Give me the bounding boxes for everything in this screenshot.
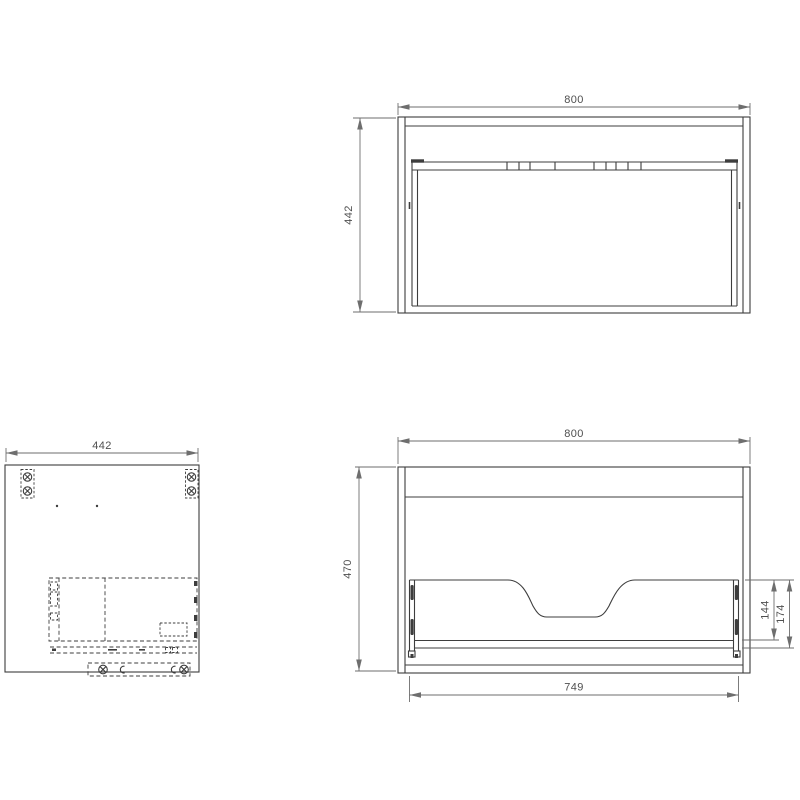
dim-front-height: 470	[342, 467, 396, 671]
dim-label-front-width: 800	[564, 428, 584, 440]
dim-drawer-width: 749	[410, 676, 739, 702]
pilot-hole-dot	[56, 505, 58, 507]
dim-label-top-width: 800	[564, 94, 584, 106]
technical-drawing: 800 442	[0, 0, 800, 800]
top-view-slide-brackets	[410, 159, 740, 209]
drawing-sheet: 800 442	[0, 0, 800, 800]
dim-label-drawer-width: 749	[564, 682, 584, 694]
dim-top-width: 800	[398, 94, 750, 115]
front-drawer-slide-left	[409, 580, 416, 658]
dim-front-width: 800	[398, 428, 750, 464]
front-drawer-slide-right	[734, 580, 741, 658]
side-hidden-drawer	[49, 578, 198, 641]
front-drawer-back-panel	[415, 580, 734, 648]
top-view-carcass	[398, 117, 750, 313]
dim-label-front-height: 470	[342, 559, 354, 579]
dim-side-width: 442	[6, 440, 198, 462]
dim-label-back-height: 174	[775, 604, 787, 624]
dim-label-side-width: 442	[92, 440, 112, 452]
top-view-drawer-box	[412, 162, 737, 306]
pilot-hole-dot	[96, 505, 98, 507]
dim-label-cutout-height: 144	[760, 600, 772, 620]
top-view: 800 442	[343, 94, 750, 313]
side-hinge-plates	[21, 470, 198, 508]
dim-label-top-depth: 442	[343, 205, 355, 225]
side-view: 442	[5, 440, 199, 676]
front-view: 800 470 749 144 174	[342, 428, 794, 702]
dim-top-depth: 442	[343, 118, 396, 312]
side-hidden-slide-rail	[50, 647, 197, 653]
front-carcass	[398, 467, 750, 673]
side-bottom-fittings	[88, 663, 190, 676]
